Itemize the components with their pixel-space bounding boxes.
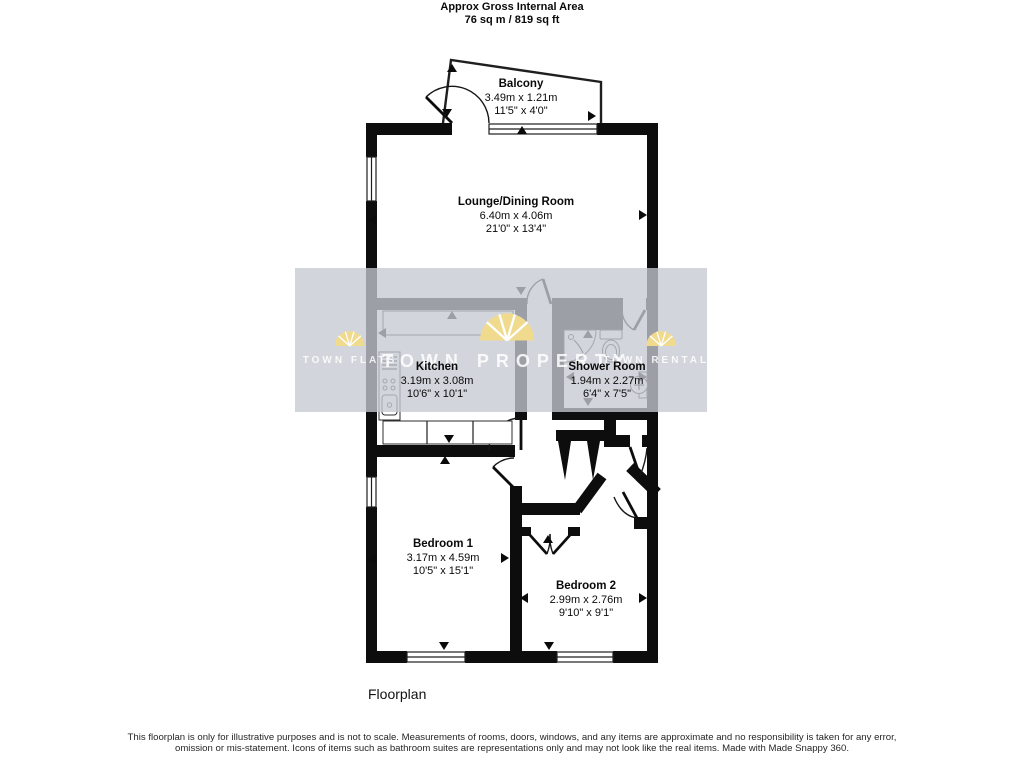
bedroom2-bottom-window: [557, 652, 613, 662]
disclaimer-text: This floorplan is only for illustrative …: [116, 733, 908, 755]
bedroom1-metric: 3.17m x 4.59m: [407, 552, 480, 566]
floorplan-caption: Floorplan: [368, 686, 426, 702]
balcony-name: Balcony: [485, 78, 558, 92]
kitchen-name: Kitchen: [401, 361, 474, 375]
balcony-door: [426, 86, 489, 123]
bedroom2-label: Bedroom 2 2.99m x 2.76m 9'10" x 9'1": [550, 580, 623, 621]
bedroom1-name: Bedroom 1: [407, 538, 480, 552]
shower-room-name: Shower Room: [568, 361, 645, 375]
balcony-window: [489, 124, 597, 134]
town-flats-fan-icon: [334, 328, 366, 347]
bedroom2-door: [614, 492, 637, 518]
shower-room-metric: 1.94m x 2.27m: [568, 375, 645, 389]
floorplan-page: Approx Gross Internal Area 76 sq m / 819…: [0, 0, 1024, 768]
shower-room-label: Shower Room 1.94m x 2.27m 6'4" x 7'5": [568, 361, 645, 402]
bedroom1-imperial: 10'5" x 15'1": [407, 565, 480, 579]
kitchen-metric: 3.19m x 3.08m: [401, 375, 474, 389]
town-property-fan-icon: [478, 308, 536, 342]
bedroom1-door: [493, 458, 514, 488]
lounge-name: Lounge/Dining Room: [458, 196, 574, 210]
lounge-left-window: [367, 157, 376, 201]
bedroom2-name: Bedroom 2: [550, 580, 623, 594]
bedroom2-imperial: 9'10" x 9'1": [550, 607, 623, 621]
lounge-label: Lounge/Dining Room 6.40m x 4.06m 21'0" x…: [458, 196, 574, 237]
lounge-imperial: 21'0" x 13'4": [458, 223, 574, 237]
kitchen-label: Kitchen 3.19m x 3.08m 10'6" x 10'1": [401, 361, 474, 402]
kitchen-imperial: 10'6" x 10'1": [401, 388, 474, 402]
bedroom1-left-window: [367, 477, 376, 507]
lounge-metric: 6.40m x 4.06m: [458, 210, 574, 224]
town-rentals-fan-icon: [645, 328, 677, 347]
bedroom2-metric: 2.99m x 2.76m: [550, 594, 623, 608]
bedroom1-label: Bedroom 1 3.17m x 4.59m 10'5" x 15'1": [407, 538, 480, 579]
balcony-metric: 3.49m x 1.21m: [485, 92, 558, 106]
balcony-imperial: 11'5" x 4'0": [485, 105, 558, 119]
shower-room-imperial: 6'4" x 7'5": [568, 388, 645, 402]
balcony-label: Balcony 3.49m x 1.21m 11'5" x 4'0": [485, 78, 558, 119]
bedroom1-bottom-window: [407, 652, 465, 662]
